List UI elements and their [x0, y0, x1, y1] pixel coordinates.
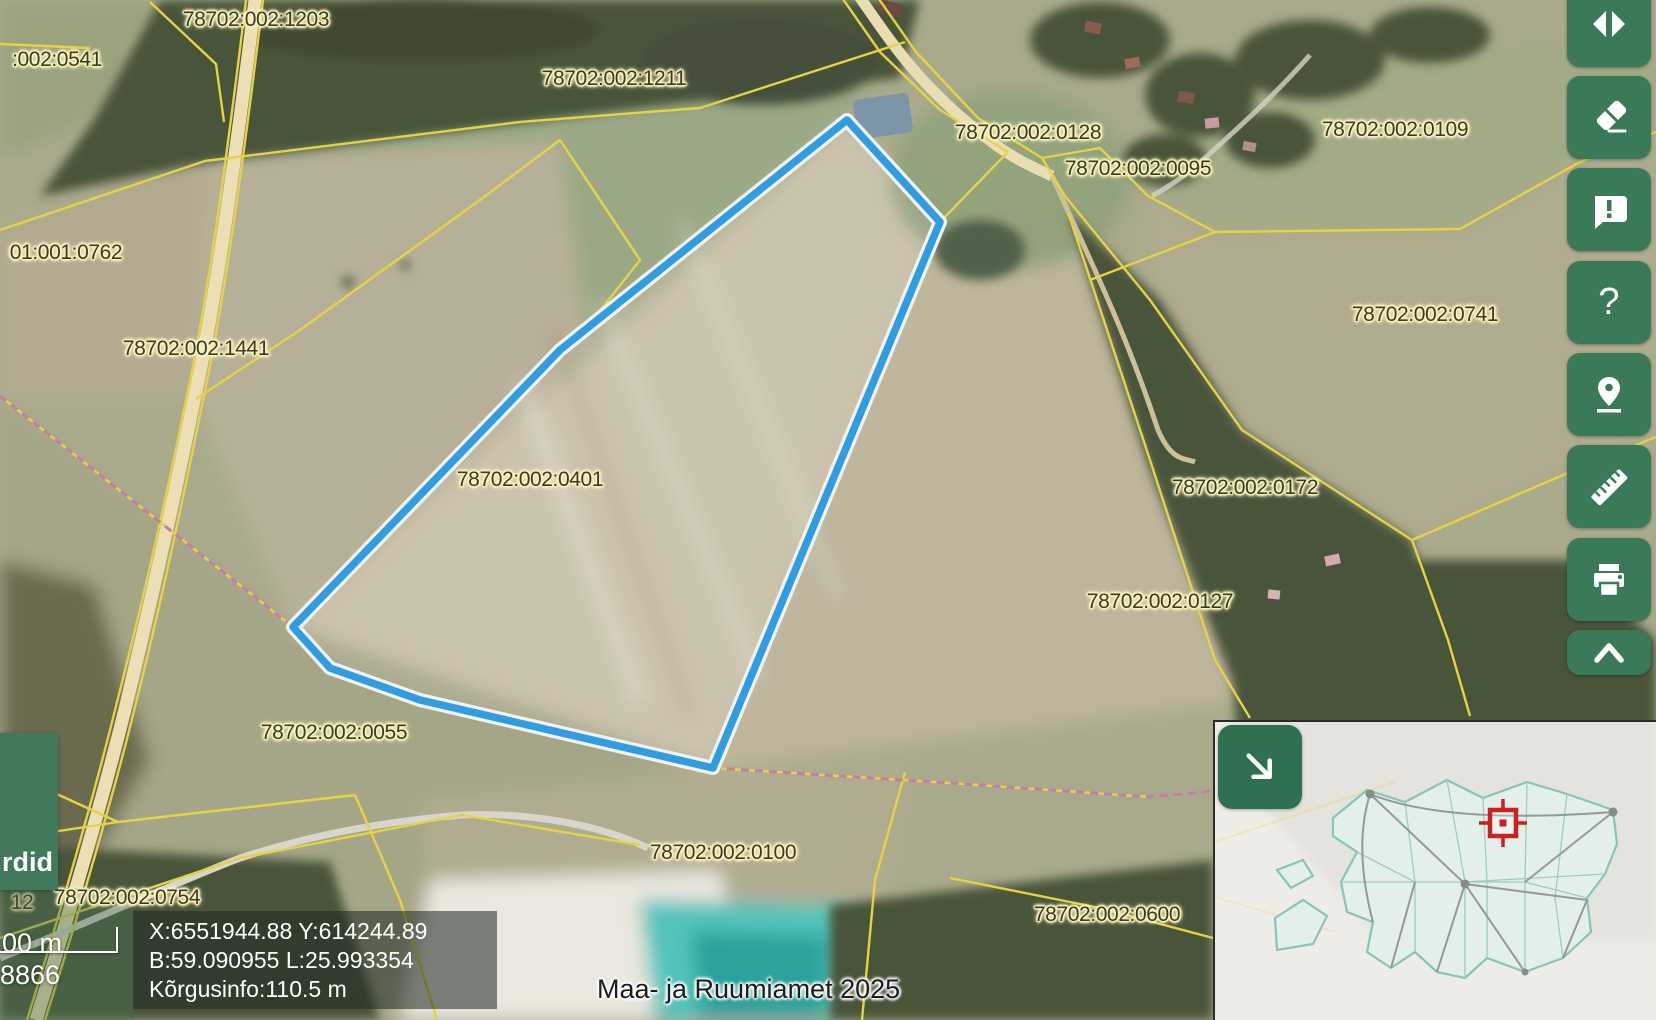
- side-panel-edge[interactable]: rdid: [0, 733, 58, 890]
- collapse-toolbar-button[interactable]: [1567, 630, 1651, 675]
- layer-compare-button[interactable]: [1567, 0, 1651, 67]
- scale-ratio: 8866: [0, 960, 60, 991]
- map-attribution: Maa- ja Ruumiamet 2025: [597, 974, 900, 1005]
- overview-minimap[interactable]: [1213, 720, 1656, 1020]
- arrow-down-right-icon: [1234, 741, 1286, 793]
- chevron-up-icon: [1585, 629, 1633, 677]
- measure-button[interactable]: [1567, 445, 1651, 528]
- elevation-info: Kõrgusinfo:110.5 m: [149, 975, 497, 1004]
- feedback-bubble-icon: [1585, 186, 1633, 234]
- side-panel-label: rdid: [2, 847, 53, 878]
- coordinate-bl: B:59.090955 L:25.993354: [149, 946, 497, 975]
- ruler-icon: [1585, 463, 1633, 511]
- scale-bar-line: [0, 951, 118, 953]
- scale-bar-tick: [116, 927, 118, 953]
- feedback-button[interactable]: [1567, 168, 1651, 251]
- minimap-expand-button[interactable]: [1218, 725, 1302, 809]
- locate-button[interactable]: [1567, 353, 1651, 436]
- eraser-icon: [1585, 94, 1633, 142]
- print-button[interactable]: [1567, 538, 1651, 621]
- location-pin-icon: [1585, 371, 1633, 419]
- printer-icon: [1585, 556, 1633, 604]
- coordinate-xy: X:6551944.88 Y:614244.89: [149, 917, 497, 946]
- compare-arrows-icon: [1585, 2, 1633, 50]
- help-button[interactable]: ?: [1567, 261, 1651, 344]
- help-icon: ?: [1598, 281, 1619, 324]
- clear-eraser-button[interactable]: [1567, 76, 1651, 159]
- coordinate-info-panel: X:6551944.88 Y:614244.89 B:59.090955 L:2…: [133, 911, 497, 1009]
- scale-distance: 00 m: [2, 928, 62, 959]
- map-application: 78702:002:1203:002:054178702:002:1211787…: [0, 0, 1656, 1020]
